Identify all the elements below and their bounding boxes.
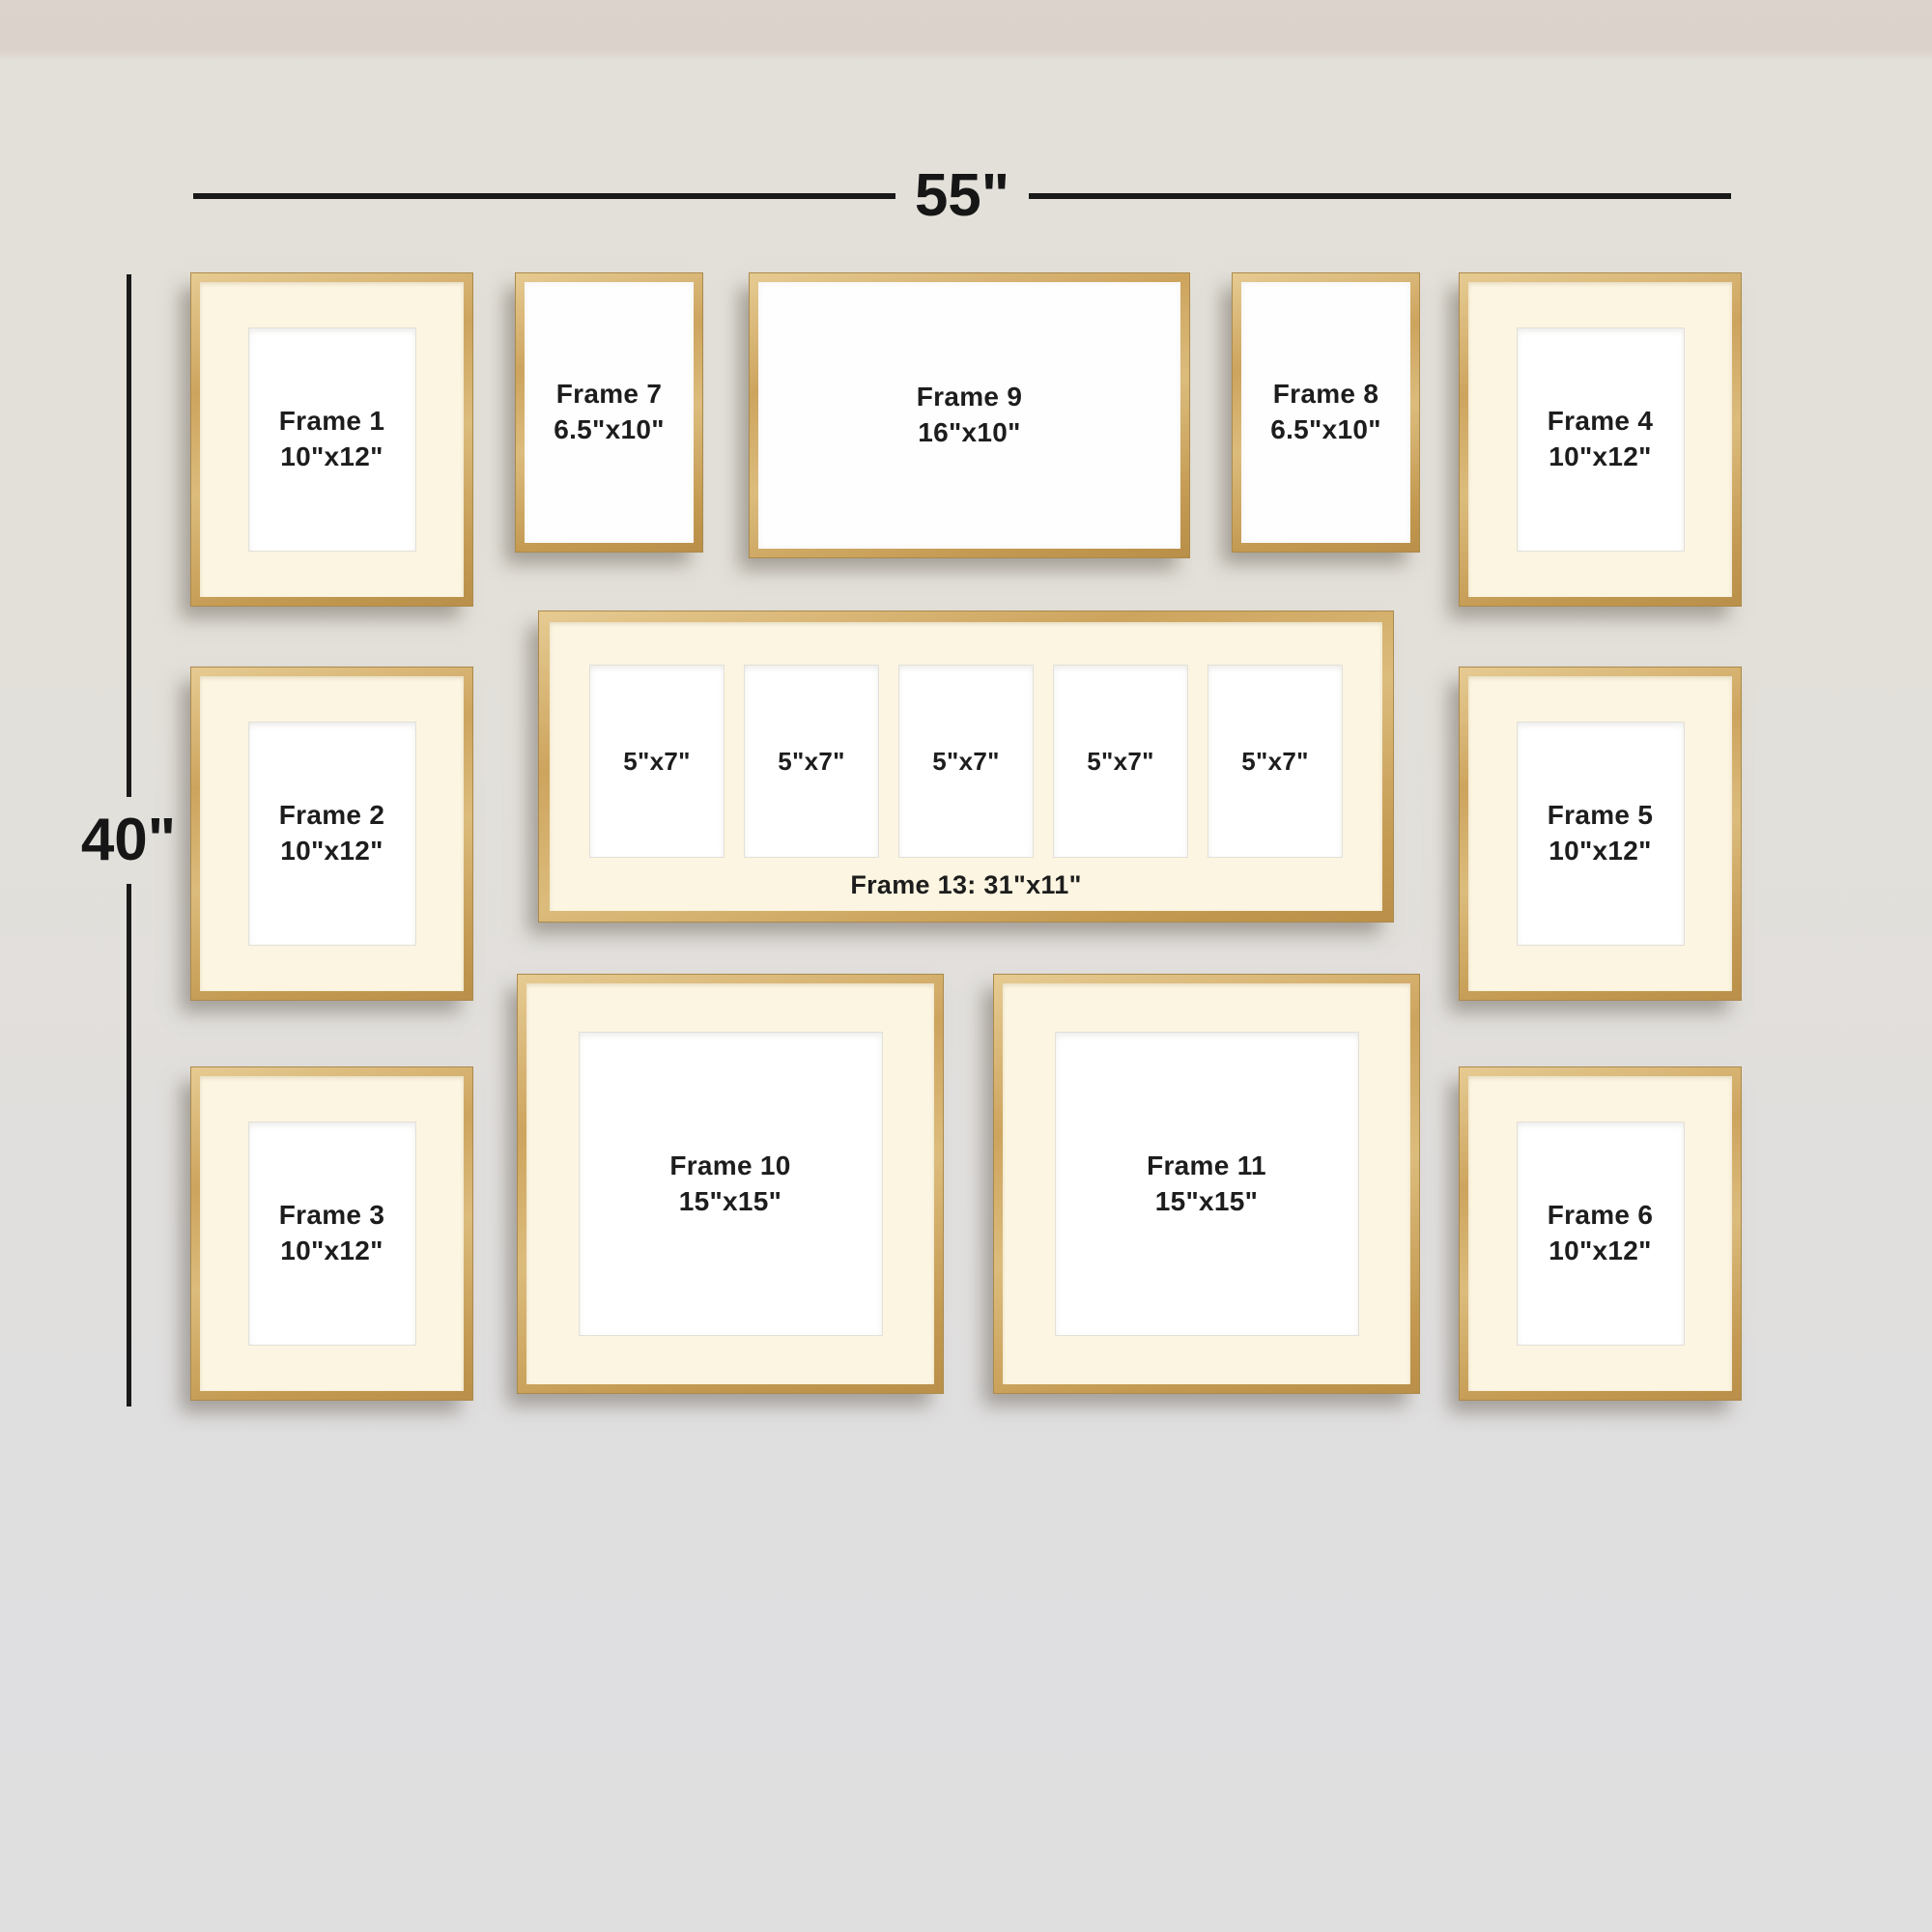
- frame-2-name: Frame 2: [279, 798, 385, 834]
- frame-1-opening: Frame 1 10"x12": [248, 327, 416, 552]
- frame-11: Frame 11 15"x15": [993, 974, 1420, 1394]
- frame-13-opening-3: 5"x7": [898, 665, 1034, 858]
- frame-10: Frame 10 15"x15": [517, 974, 944, 1394]
- frame-2-size: 10"x12": [279, 834, 385, 869]
- frame-9: Frame 9 16"x10": [749, 272, 1190, 558]
- frame-8-paper: Frame 8 6.5"x10": [1241, 282, 1410, 543]
- frame-9-label: Frame 9 16"x10": [917, 380, 1023, 451]
- frame-13-opening-2-label: 5"x7": [778, 745, 845, 778]
- frame-7-size: 6.5"x10": [554, 412, 665, 448]
- frame-3-opening: Frame 3 10"x12": [248, 1122, 416, 1346]
- frame-8-label: Frame 8 6.5"x10": [1270, 377, 1381, 448]
- width-dimension-label: 55": [915, 166, 1009, 226]
- frame-9-size: 16"x10": [917, 415, 1023, 451]
- frame-6-mat: Frame 6 10"x12": [1468, 1076, 1732, 1391]
- frame-13-opening-4: 5"x7": [1053, 665, 1188, 858]
- frame-7-name: Frame 7: [554, 377, 665, 412]
- frame-5: Frame 5 10"x12": [1459, 667, 1742, 1001]
- width-dimension: 55": [193, 162, 1731, 230]
- frame-10-opening: Frame 10 15"x15": [579, 1032, 883, 1336]
- frame-3-label: Frame 3 10"x12": [279, 1198, 385, 1269]
- frame-10-size: 15"x15": [669, 1184, 790, 1220]
- frame-8-size: 6.5"x10": [1270, 412, 1381, 448]
- frame-13-opening-5-label: 5"x7": [1241, 745, 1309, 778]
- frame-13-opening-2: 5"x7": [744, 665, 879, 858]
- height-dimension-label: 40": [81, 810, 176, 870]
- frame-9-name: Frame 9: [917, 380, 1023, 415]
- height-dimension: 40": [89, 274, 168, 1406]
- frame-6-name: Frame 6: [1548, 1198, 1654, 1234]
- frame-8: Frame 8 6.5"x10": [1232, 272, 1420, 553]
- frame-3-name: Frame 3: [279, 1198, 385, 1234]
- frame-2-label: Frame 2 10"x12": [279, 798, 385, 869]
- frame-6-label: Frame 6 10"x12": [1548, 1198, 1654, 1269]
- frame-11-mat: Frame 11 15"x15": [1003, 983, 1410, 1384]
- frame-11-opening: Frame 11 15"x15": [1055, 1032, 1359, 1336]
- frame-10-mat: Frame 10 15"x15": [526, 983, 934, 1384]
- frame-13-opening-3-label: 5"x7": [932, 745, 1000, 778]
- frame-5-mat: Frame 5 10"x12": [1468, 676, 1732, 991]
- frame-6-opening: Frame 6 10"x12": [1517, 1122, 1685, 1346]
- frame-7: Frame 7 6.5"x10": [515, 272, 703, 553]
- frame-4-size: 10"x12": [1548, 440, 1654, 475]
- frame-11-size: 15"x15": [1147, 1184, 1266, 1220]
- frame-1-label: Frame 1 10"x12": [279, 404, 385, 475]
- width-dimension-line-right: [1029, 193, 1731, 199]
- frame-13-opening-1: 5"x7": [589, 665, 724, 858]
- frame-13-openings: 5"x7" 5"x7" 5"x7" 5"x7" 5"x7": [589, 665, 1343, 858]
- height-dimension-line-bottom: [127, 884, 131, 1406]
- frame-13-mat: 5"x7" 5"x7" 5"x7" 5"x7" 5"x7" Frame 13: …: [550, 622, 1382, 911]
- frame-1-size: 10"x12": [279, 440, 385, 475]
- frame-2-opening: Frame 2 10"x12": [248, 722, 416, 946]
- frame-5-opening: Frame 5 10"x12": [1517, 722, 1685, 946]
- frame-1: Frame 1 10"x12": [190, 272, 473, 607]
- frame-1-mat: Frame 1 10"x12": [200, 282, 464, 597]
- frame-5-size: 10"x12": [1548, 834, 1654, 869]
- frame-4-opening: Frame 4 10"x12": [1517, 327, 1685, 552]
- frame-6-size: 10"x12": [1548, 1234, 1654, 1269]
- frame-2-mat: Frame 2 10"x12": [200, 676, 464, 991]
- frame-13-opening-4-label: 5"x7": [1087, 745, 1154, 778]
- frame-13: 5"x7" 5"x7" 5"x7" 5"x7" 5"x7" Frame 13: …: [538, 611, 1394, 923]
- frame-7-paper: Frame 7 6.5"x10": [525, 282, 694, 543]
- gallery-wall: 55" 40" Frame 1 10"x12" Frame 7 6.5"x10": [0, 0, 1932, 1932]
- frame-4-name: Frame 4: [1548, 404, 1654, 440]
- frame-1-name: Frame 1: [279, 404, 385, 440]
- frame-5-label: Frame 5 10"x12": [1548, 798, 1654, 869]
- frame-4-mat: Frame 4 10"x12": [1468, 282, 1732, 597]
- frame-10-label: Frame 10 15"x15": [669, 1149, 790, 1220]
- frame-3: Frame 3 10"x12": [190, 1066, 473, 1401]
- frame-3-size: 10"x12": [279, 1234, 385, 1269]
- frame-11-name: Frame 11: [1147, 1149, 1266, 1184]
- frame-7-label: Frame 7 6.5"x10": [554, 377, 665, 448]
- frame-13-caption: Frame 13: 31"x11": [850, 870, 1081, 900]
- frame-9-paper: Frame 9 16"x10": [758, 282, 1180, 549]
- frame-10-name: Frame 10: [669, 1149, 790, 1184]
- frame-8-name: Frame 8: [1270, 377, 1381, 412]
- width-dimension-line-left: [193, 193, 895, 199]
- frame-11-label: Frame 11 15"x15": [1147, 1149, 1266, 1220]
- frame-4: Frame 4 10"x12": [1459, 272, 1742, 607]
- frame-13-opening-5: 5"x7": [1207, 665, 1343, 858]
- height-dimension-line-top: [127, 274, 131, 797]
- frame-3-mat: Frame 3 10"x12": [200, 1076, 464, 1391]
- frame-13-opening-1-label: 5"x7": [623, 745, 691, 778]
- frame-6: Frame 6 10"x12": [1459, 1066, 1742, 1401]
- frame-2: Frame 2 10"x12": [190, 667, 473, 1001]
- frame-5-name: Frame 5: [1548, 798, 1654, 834]
- frame-4-label: Frame 4 10"x12": [1548, 404, 1654, 475]
